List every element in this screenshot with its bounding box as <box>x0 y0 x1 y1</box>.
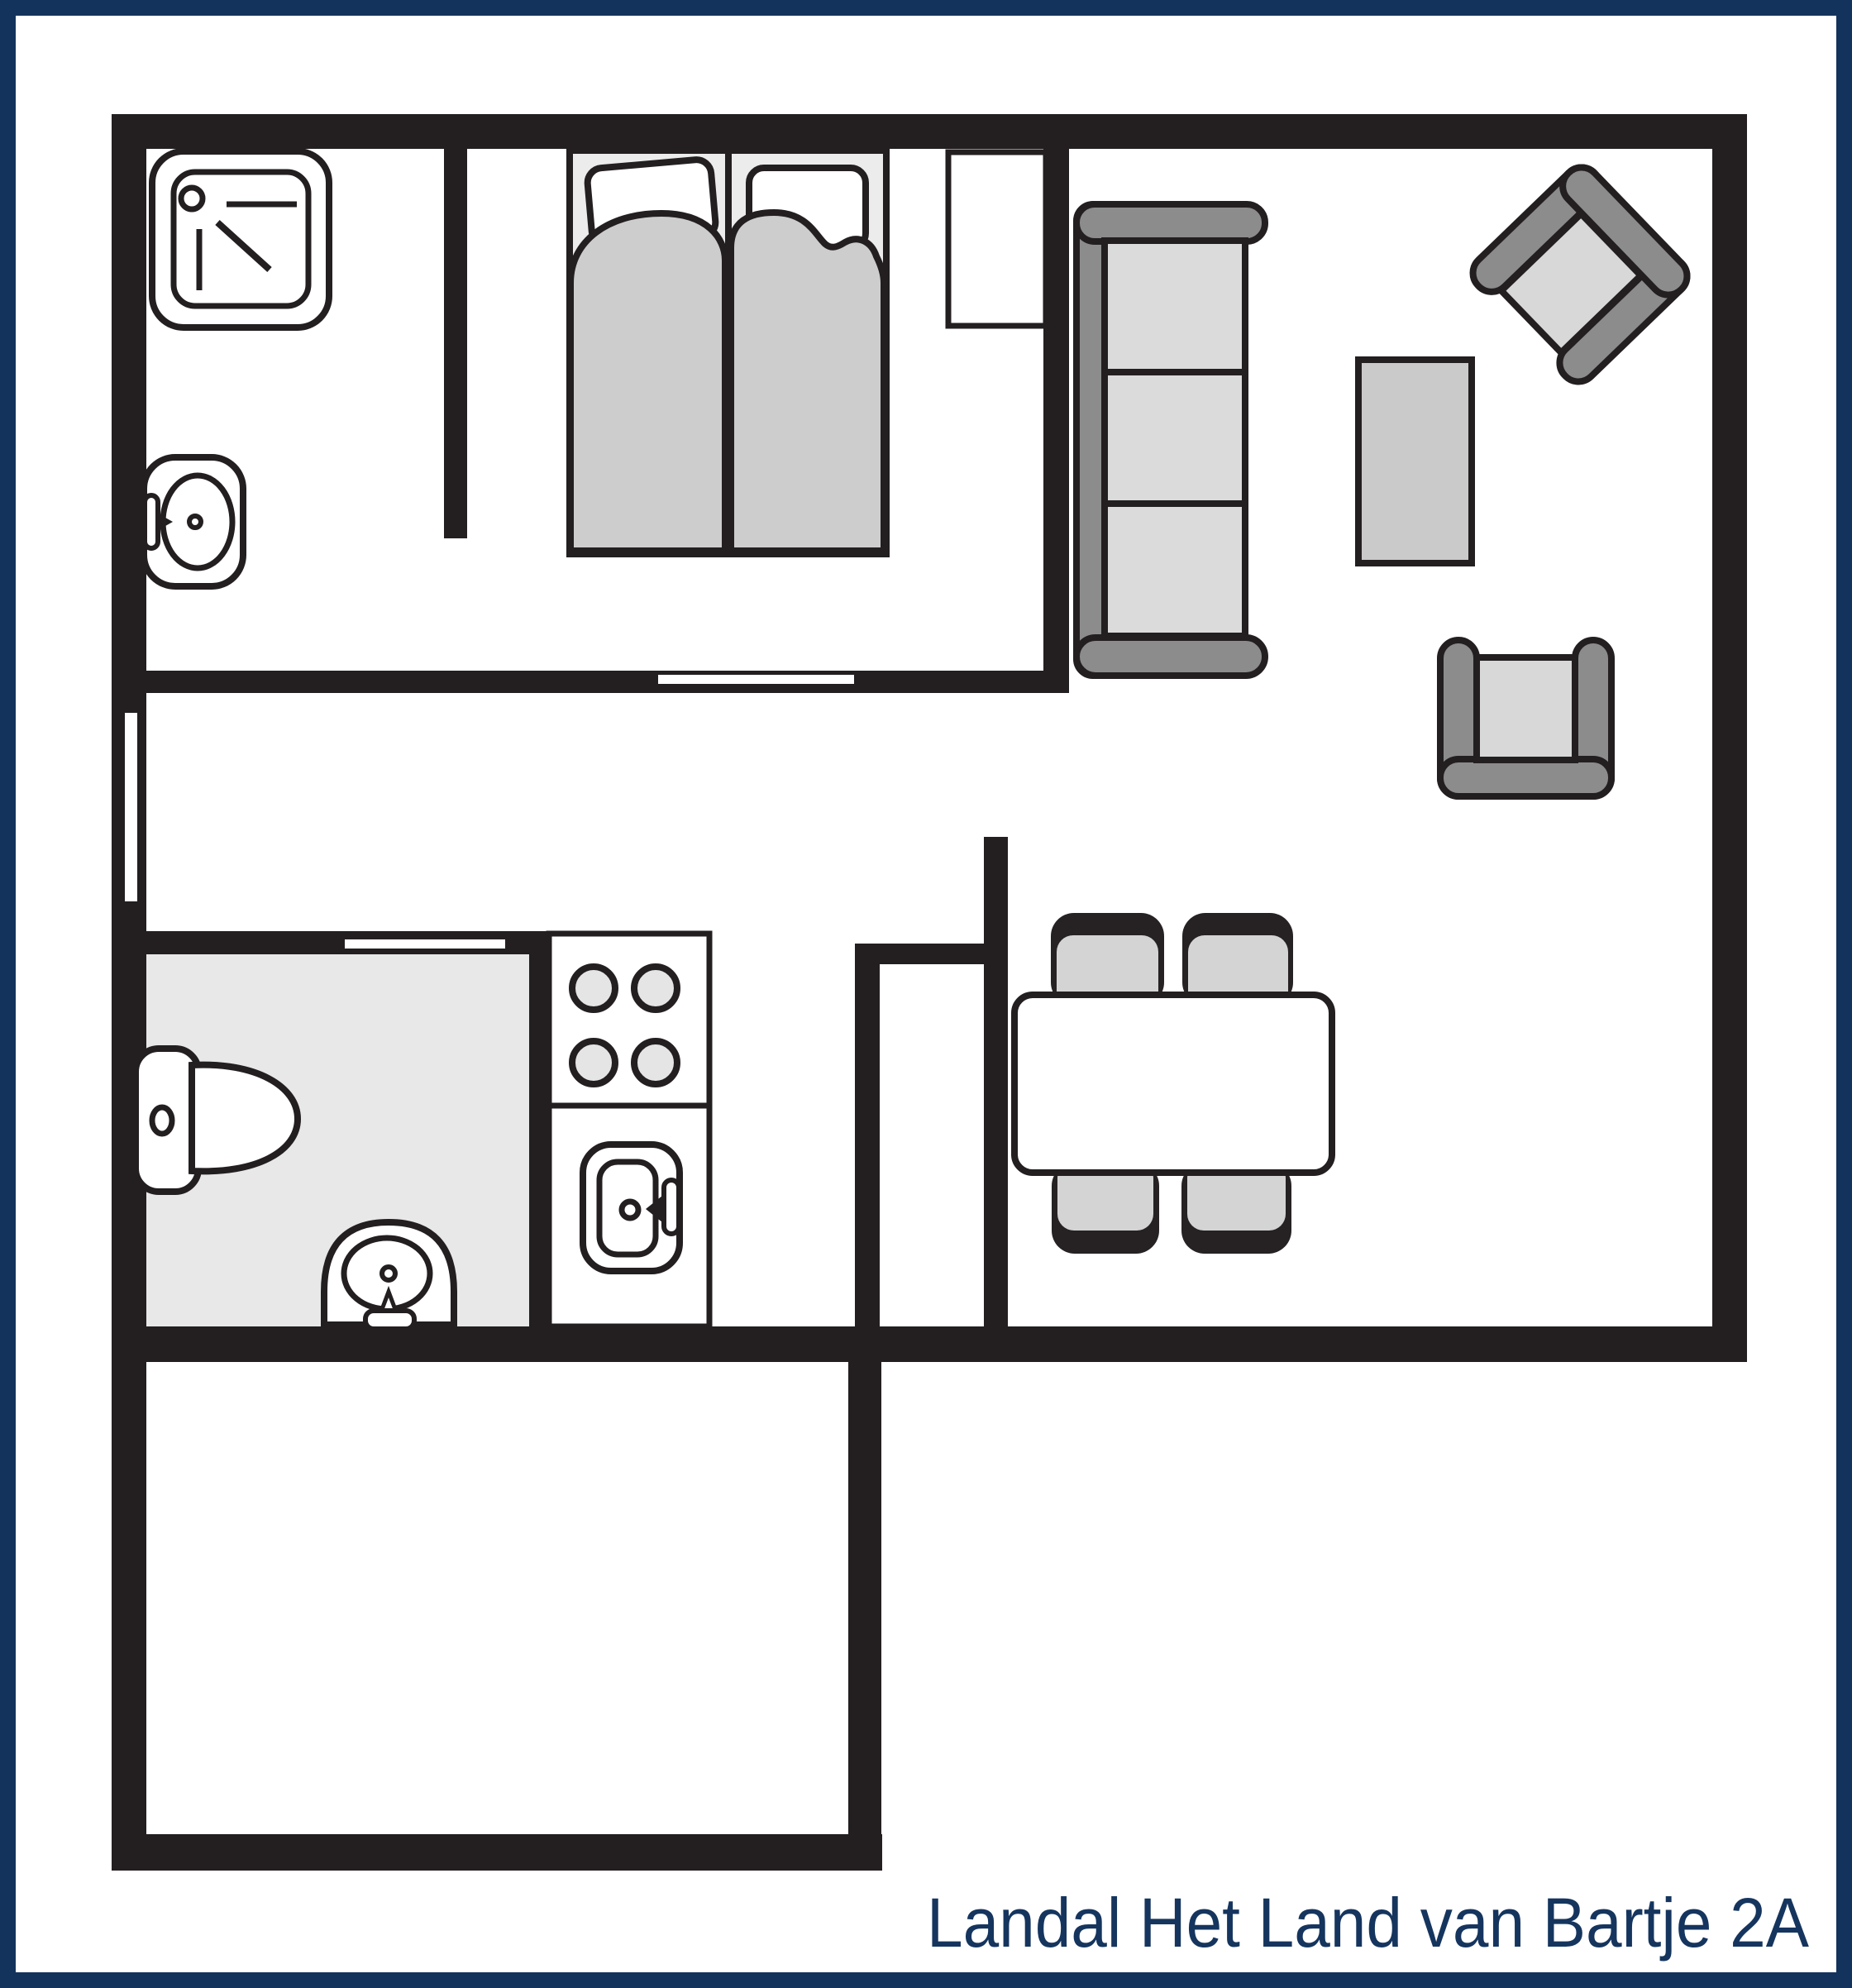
svg-text:Landal Het Land van Bartje 2A: Landal Het Land van Bartje 2A <box>927 1884 1809 1962</box>
